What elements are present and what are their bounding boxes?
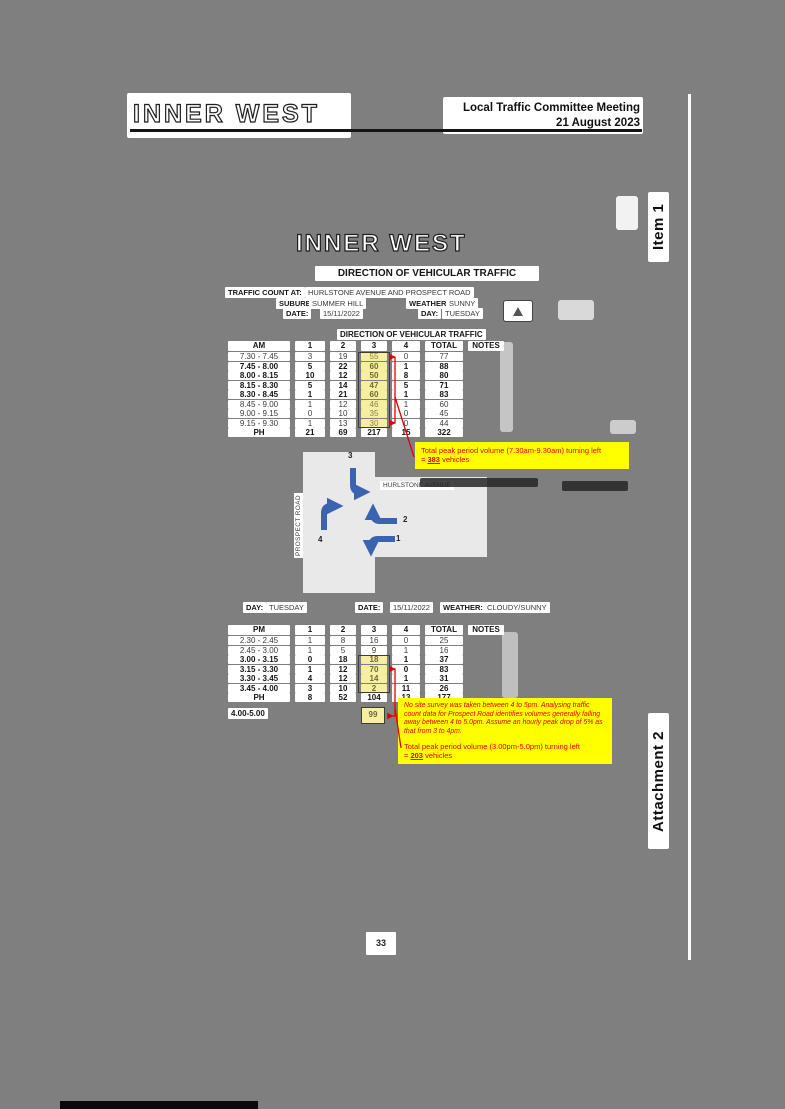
- pm-weather-value: CLOUDY/SUNNY: [484, 602, 550, 613]
- value-cell: 60: [361, 390, 387, 399]
- table-row: 3.15 - 3.30 1 12 70 0 83: [228, 665, 504, 675]
- table-row: 9.00 - 9.15 0 10 35 0 45: [228, 409, 504, 419]
- header-meeting-info: Local Traffic Committee Meeting 21 Augus…: [433, 101, 640, 131]
- col-header: 1: [295, 625, 325, 635]
- value-cell: 14: [330, 381, 356, 390]
- notes-cell: [468, 400, 504, 409]
- value-cell: 35: [361, 409, 387, 418]
- total-cell: 60: [425, 400, 463, 409]
- col-header: NOTES: [468, 341, 504, 351]
- am-table-header: AM 1 2 3 4 TOTAL NOTES: [228, 340, 504, 352]
- total-cell: 80: [425, 371, 463, 380]
- pm-note-paragraph: No site survey was taken between 4 to 5p…: [404, 702, 606, 737]
- scan-artifact: [616, 196, 638, 230]
- total-cell: 16: [425, 646, 463, 655]
- col-header: PM: [228, 625, 290, 635]
- value-cell: 12: [330, 400, 356, 409]
- scan-artifact: [420, 478, 538, 487]
- value-cell: 1: [295, 665, 325, 674]
- value-cell: 1: [295, 390, 325, 399]
- value-cell: 12: [330, 371, 356, 380]
- value-cell: 69: [330, 428, 356, 437]
- value-cell: 12: [330, 674, 356, 683]
- pm-peak-note: No site survey was taken between 4 to 5p…: [398, 698, 612, 764]
- value-cell: 22: [330, 362, 356, 371]
- notes-cell: [468, 381, 504, 390]
- value-cell: 50: [361, 371, 387, 380]
- extra-period-label: 4.00-5.00: [228, 708, 268, 719]
- col-header: 2: [330, 341, 356, 351]
- value-cell: 10: [295, 371, 325, 380]
- page: INNER WEST Local Traffic Committee Meeti…: [0, 0, 785, 1109]
- meeting-title: Local Traffic Committee Meeting: [433, 101, 640, 116]
- table-row: 8.15 - 8.30 5 14 47 5 71: [228, 381, 504, 391]
- value-cell: 1: [295, 636, 325, 645]
- am-section-title: DIRECTION OF VEHICULAR TRAFFIC: [337, 329, 486, 340]
- total-cell: 83: [425, 665, 463, 674]
- col-header: TOTAL: [425, 341, 463, 351]
- table-row: 9.15 - 9.30 1 13 30 0 44: [228, 419, 504, 429]
- date-label: DATE:: [283, 308, 311, 319]
- table-row: 3.00 - 3.15 0 18 18 1 37: [228, 655, 504, 665]
- north-arrow-icon: [503, 300, 533, 322]
- total-cell: 88: [425, 362, 463, 371]
- value-cell: 18: [330, 655, 356, 664]
- time-cell: 3.30 - 3.45: [228, 674, 290, 683]
- notes-cell: [468, 684, 504, 693]
- value-cell: 12: [330, 665, 356, 674]
- value-cell: 70: [361, 665, 387, 674]
- pm-date-label: DATE:: [355, 602, 383, 613]
- table-row: 2.45 - 3.00 1 5 9 1 16: [228, 646, 504, 656]
- value-cell: 14: [361, 674, 387, 683]
- time-cell: PH: [228, 693, 290, 702]
- total-cell: 44: [425, 419, 463, 428]
- value-cell: 3: [295, 684, 325, 693]
- day-value: TUESDAY: [442, 308, 483, 319]
- notes-cell: [468, 419, 504, 428]
- am-table-body: 7.30 - 7.45 3 19 55 0 77 7.45 - 8.00 5 2…: [228, 352, 504, 438]
- notes-cell: [468, 409, 504, 418]
- value-cell: 16: [361, 636, 387, 645]
- scan-artifact: [558, 300, 594, 320]
- value-cell: 0: [295, 655, 325, 664]
- scan-artifact: [562, 481, 628, 491]
- time-cell: 2.30 - 2.45: [228, 636, 290, 645]
- value-cell: 60: [361, 362, 387, 371]
- value-cell: 0: [392, 636, 420, 645]
- notes-cell: [468, 428, 504, 437]
- scan-artifact: [502, 632, 518, 698]
- col-header: 3: [361, 341, 387, 351]
- traffic-count-label: TRAFFIC COUNT AT:: [225, 287, 305, 298]
- pm-table-body: 2.30 - 2.45 1 8 16 0 25 2.45 - 3.00 1 5 …: [228, 636, 504, 703]
- value-cell: 15: [392, 428, 420, 437]
- total-cell: 37: [425, 655, 463, 664]
- time-cell: 7.45 - 8.00: [228, 362, 290, 371]
- movement-label-1: 1: [396, 534, 400, 543]
- col-header: 4: [392, 341, 420, 351]
- total-cell: 45: [425, 409, 463, 418]
- time-cell: 8.00 - 8.15: [228, 371, 290, 380]
- value-cell: 5: [392, 381, 420, 390]
- pm-note-line1: Total peak period volume (3.00pm-5.0pm) …: [404, 742, 606, 751]
- notes-cell: [468, 674, 504, 683]
- item-label: Item 1: [648, 192, 669, 262]
- value-cell: 1: [392, 362, 420, 371]
- value-cell: 8: [330, 636, 356, 645]
- col-header: AM: [228, 341, 290, 351]
- table-row: 3.30 - 3.45 4 12 14 1 31: [228, 674, 504, 684]
- value-cell: 0: [392, 352, 420, 361]
- col-header: 4: [392, 625, 420, 635]
- value-cell: 1: [295, 419, 325, 428]
- scan-artifact: [610, 420, 636, 434]
- movement-label-3: 3: [348, 451, 352, 460]
- time-cell: 8.15 - 8.30: [228, 381, 290, 390]
- scan-logo: INNER WEST: [296, 230, 467, 258]
- notes-cell: [468, 390, 504, 399]
- value-cell: 52: [330, 693, 356, 702]
- table-row: 7.30 - 7.45 3 19 55 0 77: [228, 352, 504, 362]
- table-row: 2.30 - 2.45 1 8 16 0 25: [228, 636, 504, 646]
- day-label: DAY:: [418, 308, 441, 319]
- pm-day-label: DAY:: [243, 602, 266, 613]
- value-cell: 1: [392, 655, 420, 664]
- scan-artifact: [500, 342, 513, 432]
- value-cell: 19: [330, 352, 356, 361]
- value-cell: 0: [295, 409, 325, 418]
- street-name-prospect: PROSPECT ROAD: [294, 493, 303, 558]
- value-cell: 30: [361, 419, 387, 428]
- notes-cell: [468, 646, 504, 655]
- col-header: 3: [361, 625, 387, 635]
- value-cell: 1: [295, 646, 325, 655]
- value-cell: 1: [392, 400, 420, 409]
- header-logo: INNER WEST: [133, 100, 320, 129]
- value-cell: 9: [361, 646, 387, 655]
- value-cell: 0: [392, 409, 420, 418]
- time-cell: 2.45 - 3.00: [228, 646, 290, 655]
- movement-label-4: 4: [318, 535, 322, 544]
- value-cell: 5: [295, 362, 325, 371]
- notes-cell: [468, 655, 504, 664]
- pm-table: PM 1 2 3 4 TOTAL NOTES 2.30 - 2.45 1 8 1…: [228, 624, 504, 703]
- time-cell: 9.00 - 9.15: [228, 409, 290, 418]
- total-cell: 31: [425, 674, 463, 683]
- value-cell: 1: [392, 390, 420, 399]
- value-cell: 13: [330, 419, 356, 428]
- movement-label-2: 2: [403, 515, 407, 524]
- header-rule: [130, 129, 642, 132]
- am-table: AM 1 2 3 4 TOTAL NOTES 7.30 - 7.45 3 19 …: [228, 340, 504, 438]
- time-cell: 3.00 - 3.15: [228, 655, 290, 664]
- total-cell: 71: [425, 381, 463, 390]
- value-cell: 0: [392, 419, 420, 428]
- value-cell: 8: [295, 693, 325, 702]
- pm-table-header: PM 1 2 3 4 TOTAL NOTES: [228, 624, 504, 636]
- extra-period-value: 99: [361, 707, 385, 724]
- value-cell: 10: [330, 409, 356, 418]
- col-header: 2: [330, 625, 356, 635]
- table-row: 8.30 - 8.45 1 21 60 1 83: [228, 390, 504, 400]
- total-cell: 26: [425, 684, 463, 693]
- value-cell: 0: [392, 665, 420, 674]
- pm-weather-label: WEATHER:: [440, 602, 486, 613]
- value-cell: 217: [361, 428, 387, 437]
- time-cell: 9.15 - 9.30: [228, 419, 290, 428]
- notes-cell: [468, 352, 504, 361]
- time-cell: 3.45 - 4.00: [228, 684, 290, 693]
- notes-cell: [468, 665, 504, 674]
- margin-divider: [688, 94, 691, 960]
- time-cell: 7.30 - 7.45: [228, 352, 290, 361]
- value-cell: 21: [330, 390, 356, 399]
- pm-date-value: 15/11/2022: [390, 602, 433, 613]
- col-header: TOTAL: [425, 625, 463, 635]
- table-row: PH 21 69 217 15 322: [228, 428, 504, 438]
- value-cell: 1: [392, 646, 420, 655]
- value-cell: 21: [295, 428, 325, 437]
- value-cell: 11: [392, 684, 420, 693]
- value-cell: 4: [295, 674, 325, 683]
- value-cell: 1: [295, 400, 325, 409]
- total-cell: 322: [425, 428, 463, 437]
- value-cell: 104: [361, 693, 387, 702]
- time-cell: 3.15 - 3.30: [228, 665, 290, 674]
- value-cell: 47: [361, 381, 387, 390]
- scan-artifact: [60, 1101, 258, 1109]
- value-cell: 3: [295, 352, 325, 361]
- col-header: 1: [295, 341, 325, 351]
- col-header: NOTES: [468, 625, 504, 635]
- value-cell: 10: [330, 684, 356, 693]
- value-cell: 2: [361, 684, 387, 693]
- date-value: 15/11/2022: [320, 308, 363, 319]
- page-number: 33: [366, 932, 396, 955]
- notes-cell: [468, 362, 504, 371]
- value-cell: 8: [392, 371, 420, 380]
- time-cell: 8.30 - 8.45: [228, 390, 290, 399]
- pm-day-value: TUESDAY: [266, 602, 307, 613]
- total-cell: 83: [425, 390, 463, 399]
- value-cell: 46: [361, 400, 387, 409]
- time-cell: PH: [228, 428, 290, 437]
- notes-cell: [468, 371, 504, 380]
- intersection-diagram: HURLSTONE AVENUE PROSPECT ROAD 3 2 1 4: [294, 443, 494, 595]
- value-cell: 55: [361, 352, 387, 361]
- value-cell: 1: [392, 674, 420, 683]
- value-cell: 18: [361, 655, 387, 664]
- total-cell: 77: [425, 352, 463, 361]
- road-prospect: [303, 452, 375, 593]
- table-row: 3.45 - 4.00 3 10 2 11 26: [228, 684, 504, 694]
- table-row: 7.45 - 8.00 5 22 60 1 88: [228, 362, 504, 372]
- pm-note-line2: = 203 vehicles: [404, 751, 606, 760]
- value-cell: 5: [295, 381, 325, 390]
- time-cell: 8.45 - 9.00: [228, 400, 290, 409]
- traffic-count-value: HURLSTONE AVENUE AND PROSPECT ROAD: [305, 287, 474, 298]
- doc-title: DIRECTION OF VEHICULAR TRAFFIC: [315, 266, 539, 281]
- value-cell: 5: [330, 646, 356, 655]
- table-row: 8.00 - 8.15 10 12 50 8 80: [228, 371, 504, 381]
- table-row: 8.45 - 9.00 1 12 46 1 60: [228, 400, 504, 410]
- attachment-label: Attachment 2: [648, 713, 669, 849]
- total-cell: 25: [425, 636, 463, 645]
- notes-cell: [468, 636, 504, 645]
